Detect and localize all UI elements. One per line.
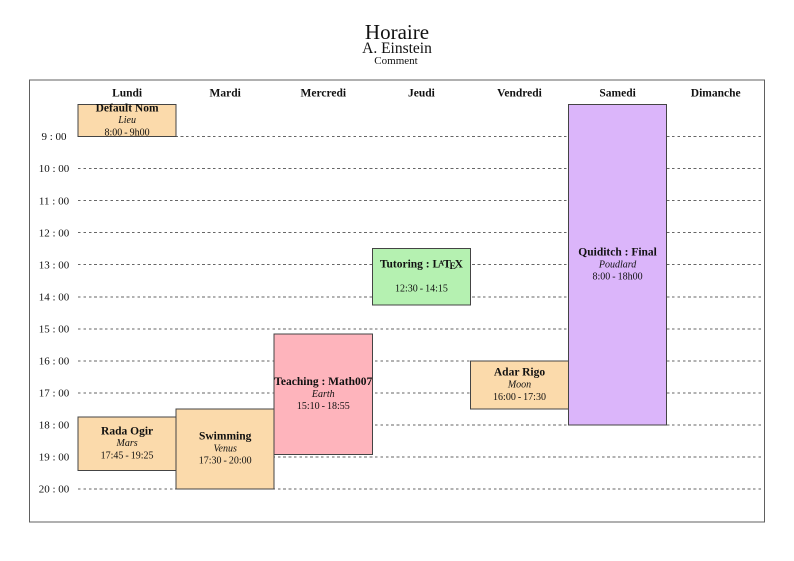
svg-text:20 : 00: 20 : 00 [39,484,70,496]
svg-text:12:30 - 14:15: 12:30 - 14:15 [395,284,448,295]
svg-text:17 : 00: 17 : 00 [39,388,70,400]
svg-text:12 : 00: 12 : 00 [39,227,70,239]
svg-text:Venus: Venus [214,443,237,454]
svg-text:13 : 00: 13 : 00 [39,259,70,271]
svg-text:Jeudi: Jeudi [408,88,436,100]
svg-text:Earth: Earth [311,389,335,400]
svg-text:17:45 - 19:25: 17:45 - 19:25 [101,451,154,462]
svg-text:19 : 00: 19 : 00 [39,452,70,464]
svg-text:15:10 - 18:55: 15:10 - 18:55 [297,401,350,412]
svg-text:Lundi: Lundi [112,88,143,100]
svg-text:16 : 00: 16 : 00 [39,356,70,368]
svg-text:Rada Ogir: Rada Ogir [101,425,153,437]
svg-text:Comment: Comment [374,55,417,67]
svg-text:17:30 - 20:00: 17:30 - 20:00 [199,456,252,467]
svg-text:14 : 00: 14 : 00 [39,291,70,303]
svg-text:Dimanche: Dimanche [691,88,741,100]
svg-text:8:00 - 18h00: 8:00 - 18h00 [593,272,643,283]
svg-text:11 : 00: 11 : 00 [39,195,70,207]
svg-text:Teaching : Math007: Teaching : Math007 [274,376,372,388]
svg-text:Lieu: Lieu [117,115,136,126]
svg-text:Samedi: Samedi [599,88,636,100]
svg-text:Vendredi: Vendredi [497,88,543,100]
svg-text:Moon: Moon [507,380,531,391]
svg-text:Quiditch : Final: Quiditch : Final [578,247,657,259]
svg-text:Swimming: Swimming [199,431,252,443]
svg-text:Default Nom: Default Nom [96,102,159,114]
svg-text:10 : 00: 10 : 00 [39,163,70,175]
svg-text:8:00 - 9h00: 8:00 - 9h00 [105,127,150,138]
svg-text:9 : 00: 9 : 00 [41,131,67,143]
svg-text:16:00 - 17:30: 16:00 - 17:30 [493,392,546,403]
svg-text:Mars: Mars [116,438,138,449]
svg-text:Mardi: Mardi [210,88,242,100]
svg-text:Adar Rigo: Adar Rigo [494,367,545,379]
svg-text:Poudlard: Poudlard [598,259,637,270]
svg-text:15 : 00: 15 : 00 [39,323,70,335]
svg-text:18 : 00: 18 : 00 [39,420,70,432]
svg-text:Mercredi: Mercredi [301,88,347,100]
